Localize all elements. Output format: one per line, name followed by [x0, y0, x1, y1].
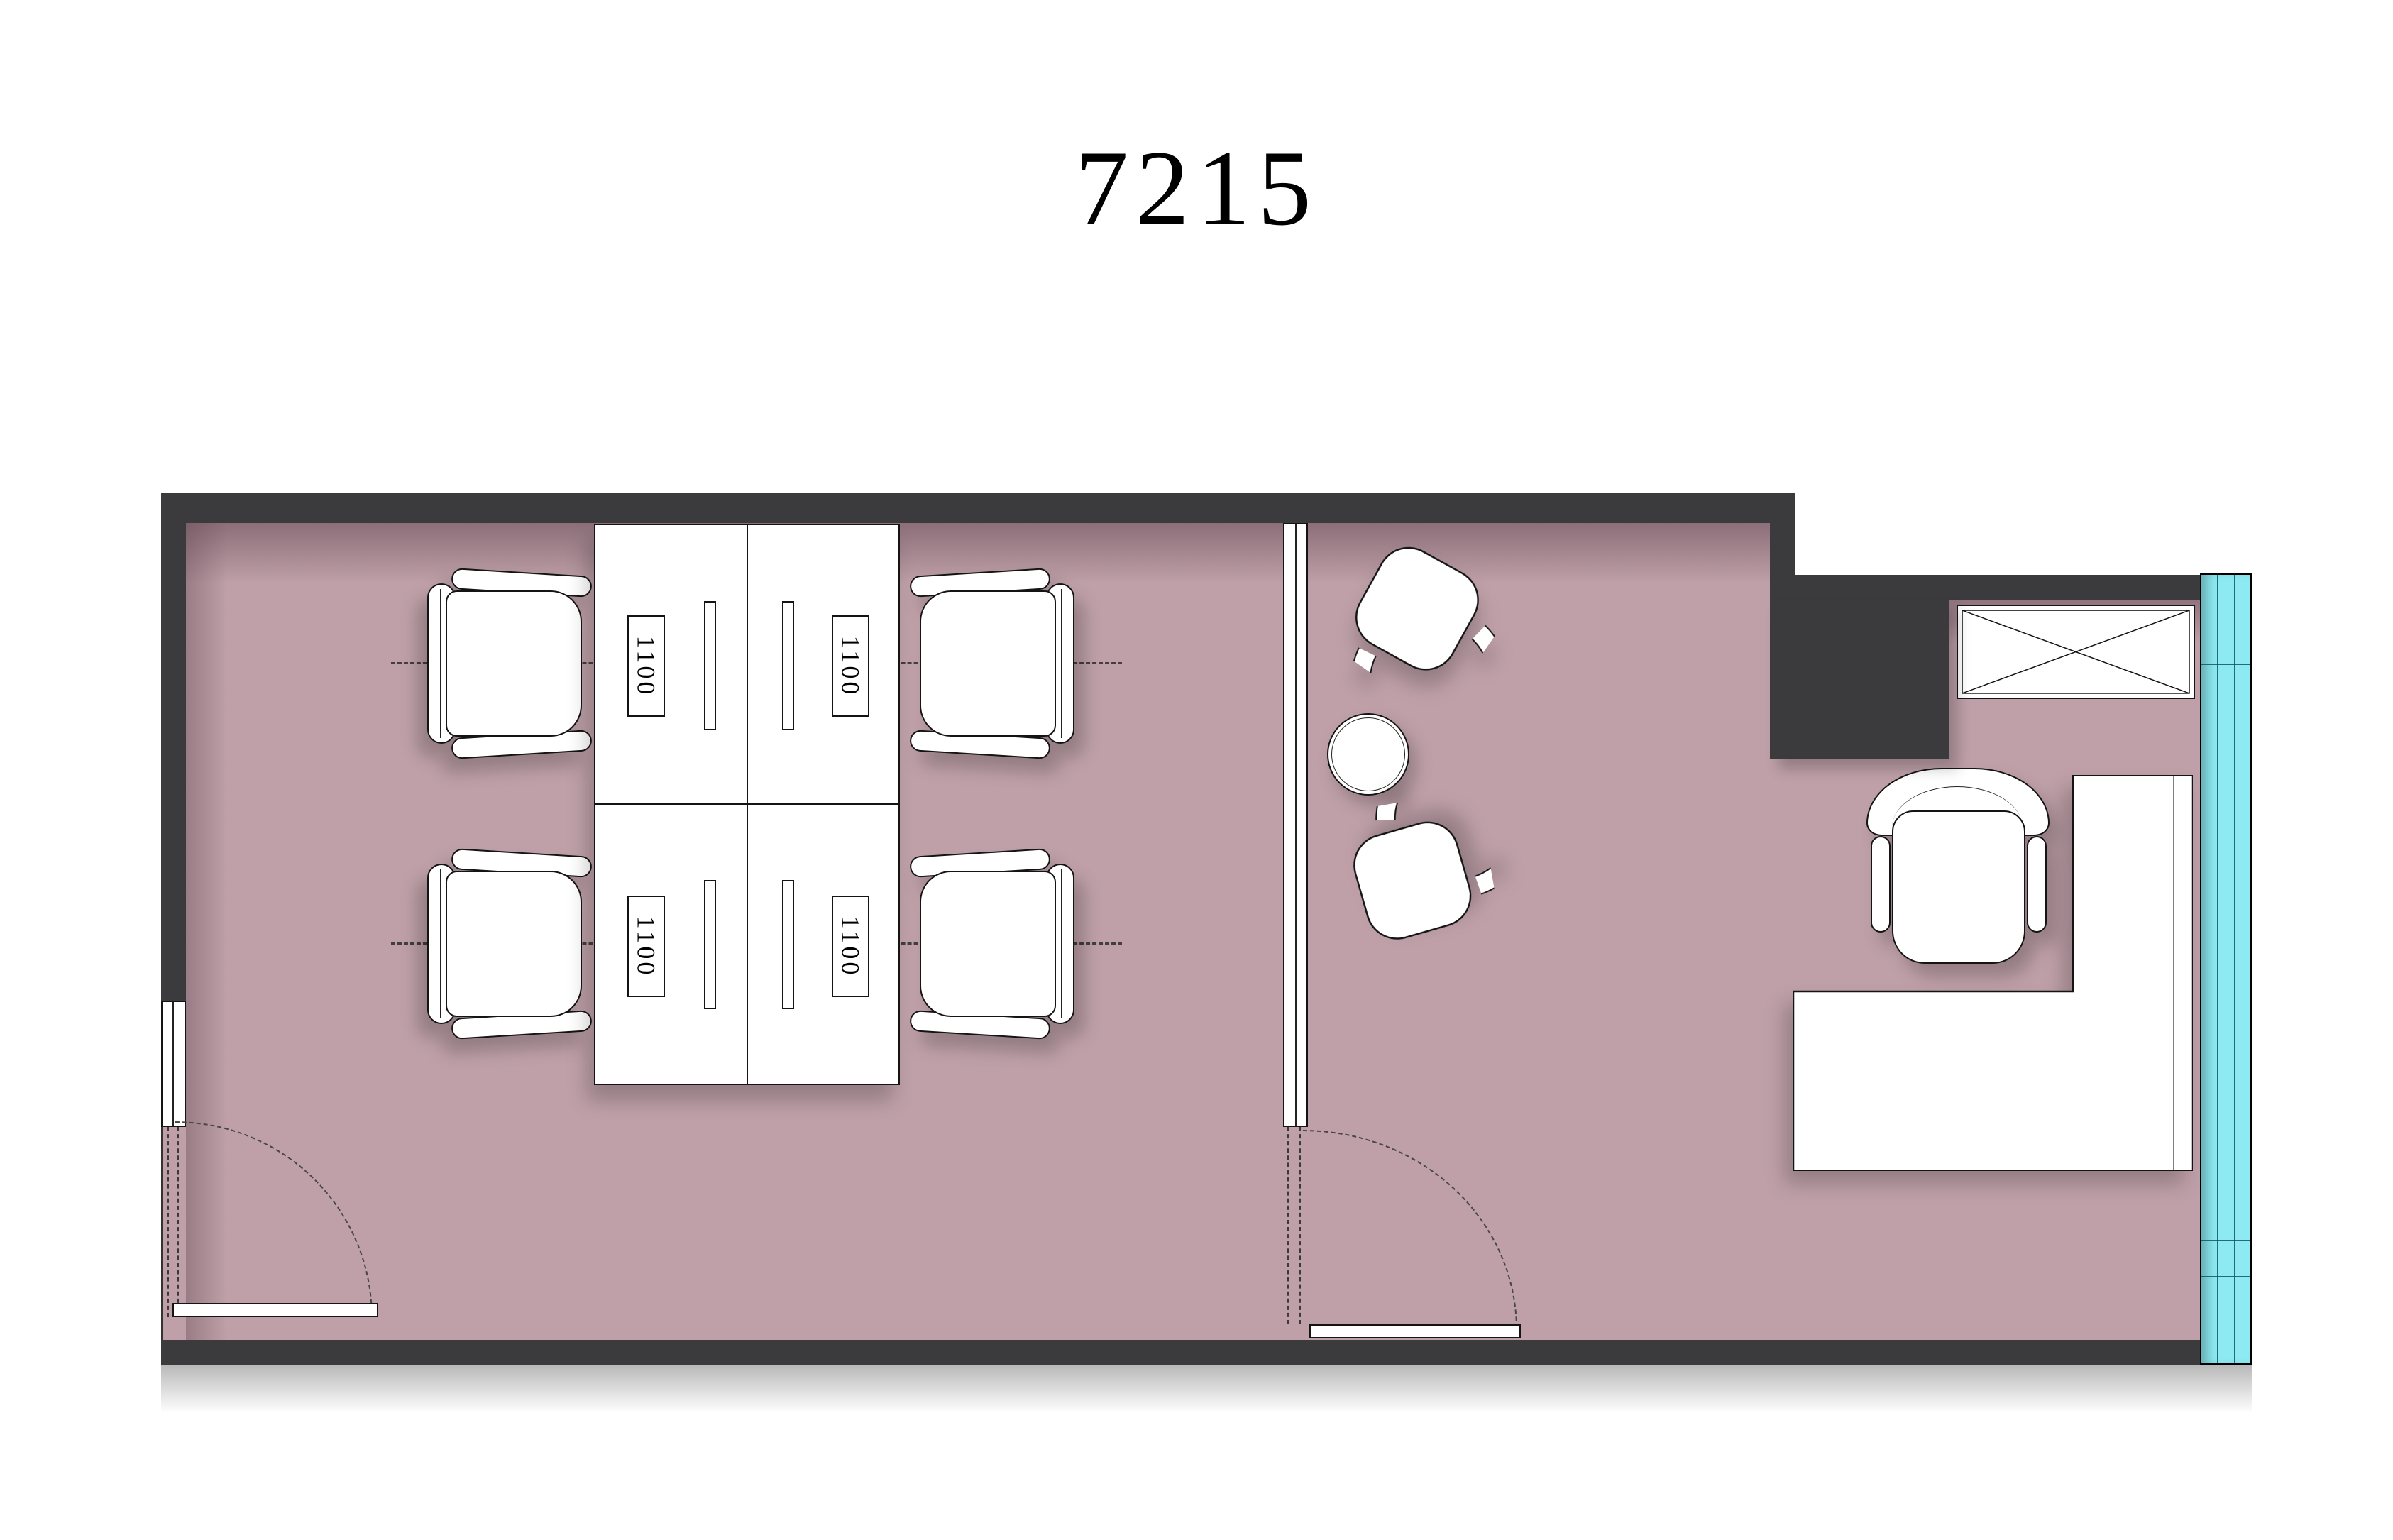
- window-mullion: [2217, 575, 2218, 1363]
- door-closed-dashed: [1287, 1127, 1301, 1324]
- storage-cabinet: [1957, 605, 2195, 699]
- door-leaf-open: [1309, 1324, 1521, 1338]
- monitor-slot: [704, 880, 716, 1009]
- workstation-label-text: 1100: [836, 915, 866, 977]
- round-side-table: [1327, 713, 1409, 796]
- chair-seat: [446, 590, 582, 737]
- desk-cluster: 1100 1100 1100 1100: [594, 524, 900, 1085]
- workstation-label: 1100: [832, 896, 869, 997]
- wall-bottom: [161, 1340, 2200, 1365]
- door-jamb-line: [172, 1002, 174, 1126]
- wall-step: [1770, 523, 1795, 600]
- chair-seat: [1892, 810, 2025, 964]
- curtain-wall-window: [2200, 573, 2252, 1365]
- workstation-label: 1100: [832, 615, 869, 717]
- monitor-slot: [704, 601, 716, 730]
- chair-seat: [920, 590, 1056, 737]
- window-mullion: [2201, 664, 2250, 665]
- monitor-slot: [782, 880, 794, 1009]
- lounge-chair-drawing: [1312, 788, 1505, 981]
- wall-top-right-section: [1795, 575, 2200, 600]
- door-jamb: [161, 1001, 186, 1127]
- chair-armrest: [2027, 836, 2047, 933]
- desk-divider-horizontal: [595, 803, 898, 805]
- monitor-slot: [782, 601, 794, 730]
- chair-seat: [446, 871, 582, 1017]
- chair-seat: [920, 871, 1056, 1017]
- door-leaf-open: [172, 1303, 378, 1317]
- lounge-chair: [1312, 788, 1505, 981]
- workstation-label: 1100: [627, 615, 665, 717]
- window-mullion: [2234, 575, 2235, 1363]
- task-chair: [910, 572, 1074, 755]
- workstation-label-text: 1100: [632, 915, 661, 977]
- chair-armrest: [1871, 836, 1891, 933]
- window-mullion: [2201, 1240, 2250, 1241]
- task-chair: [427, 572, 592, 755]
- task-chair: [427, 852, 592, 1035]
- floor-plan: 7215 1100 11: [0, 0, 2393, 1540]
- wall-left: [161, 493, 186, 1001]
- wall-top: [161, 493, 1795, 523]
- task-chair: [910, 852, 1074, 1035]
- workstation-label-text: 1100: [836, 635, 866, 697]
- structural-column: [1770, 600, 1949, 759]
- workstation-label-text: 1100: [632, 635, 661, 697]
- plan-title: 7215: [0, 126, 2393, 250]
- office-chair: [1865, 768, 2052, 974]
- cabinet-cross-icon: [1958, 606, 2194, 698]
- glass-partition: [1283, 523, 1308, 1127]
- glass-partition-line: [1295, 524, 1297, 1126]
- workstation-label: 1100: [627, 896, 665, 997]
- window-mullion: [2201, 1276, 2250, 1277]
- wall-bottom-shadow: [161, 1365, 2252, 1413]
